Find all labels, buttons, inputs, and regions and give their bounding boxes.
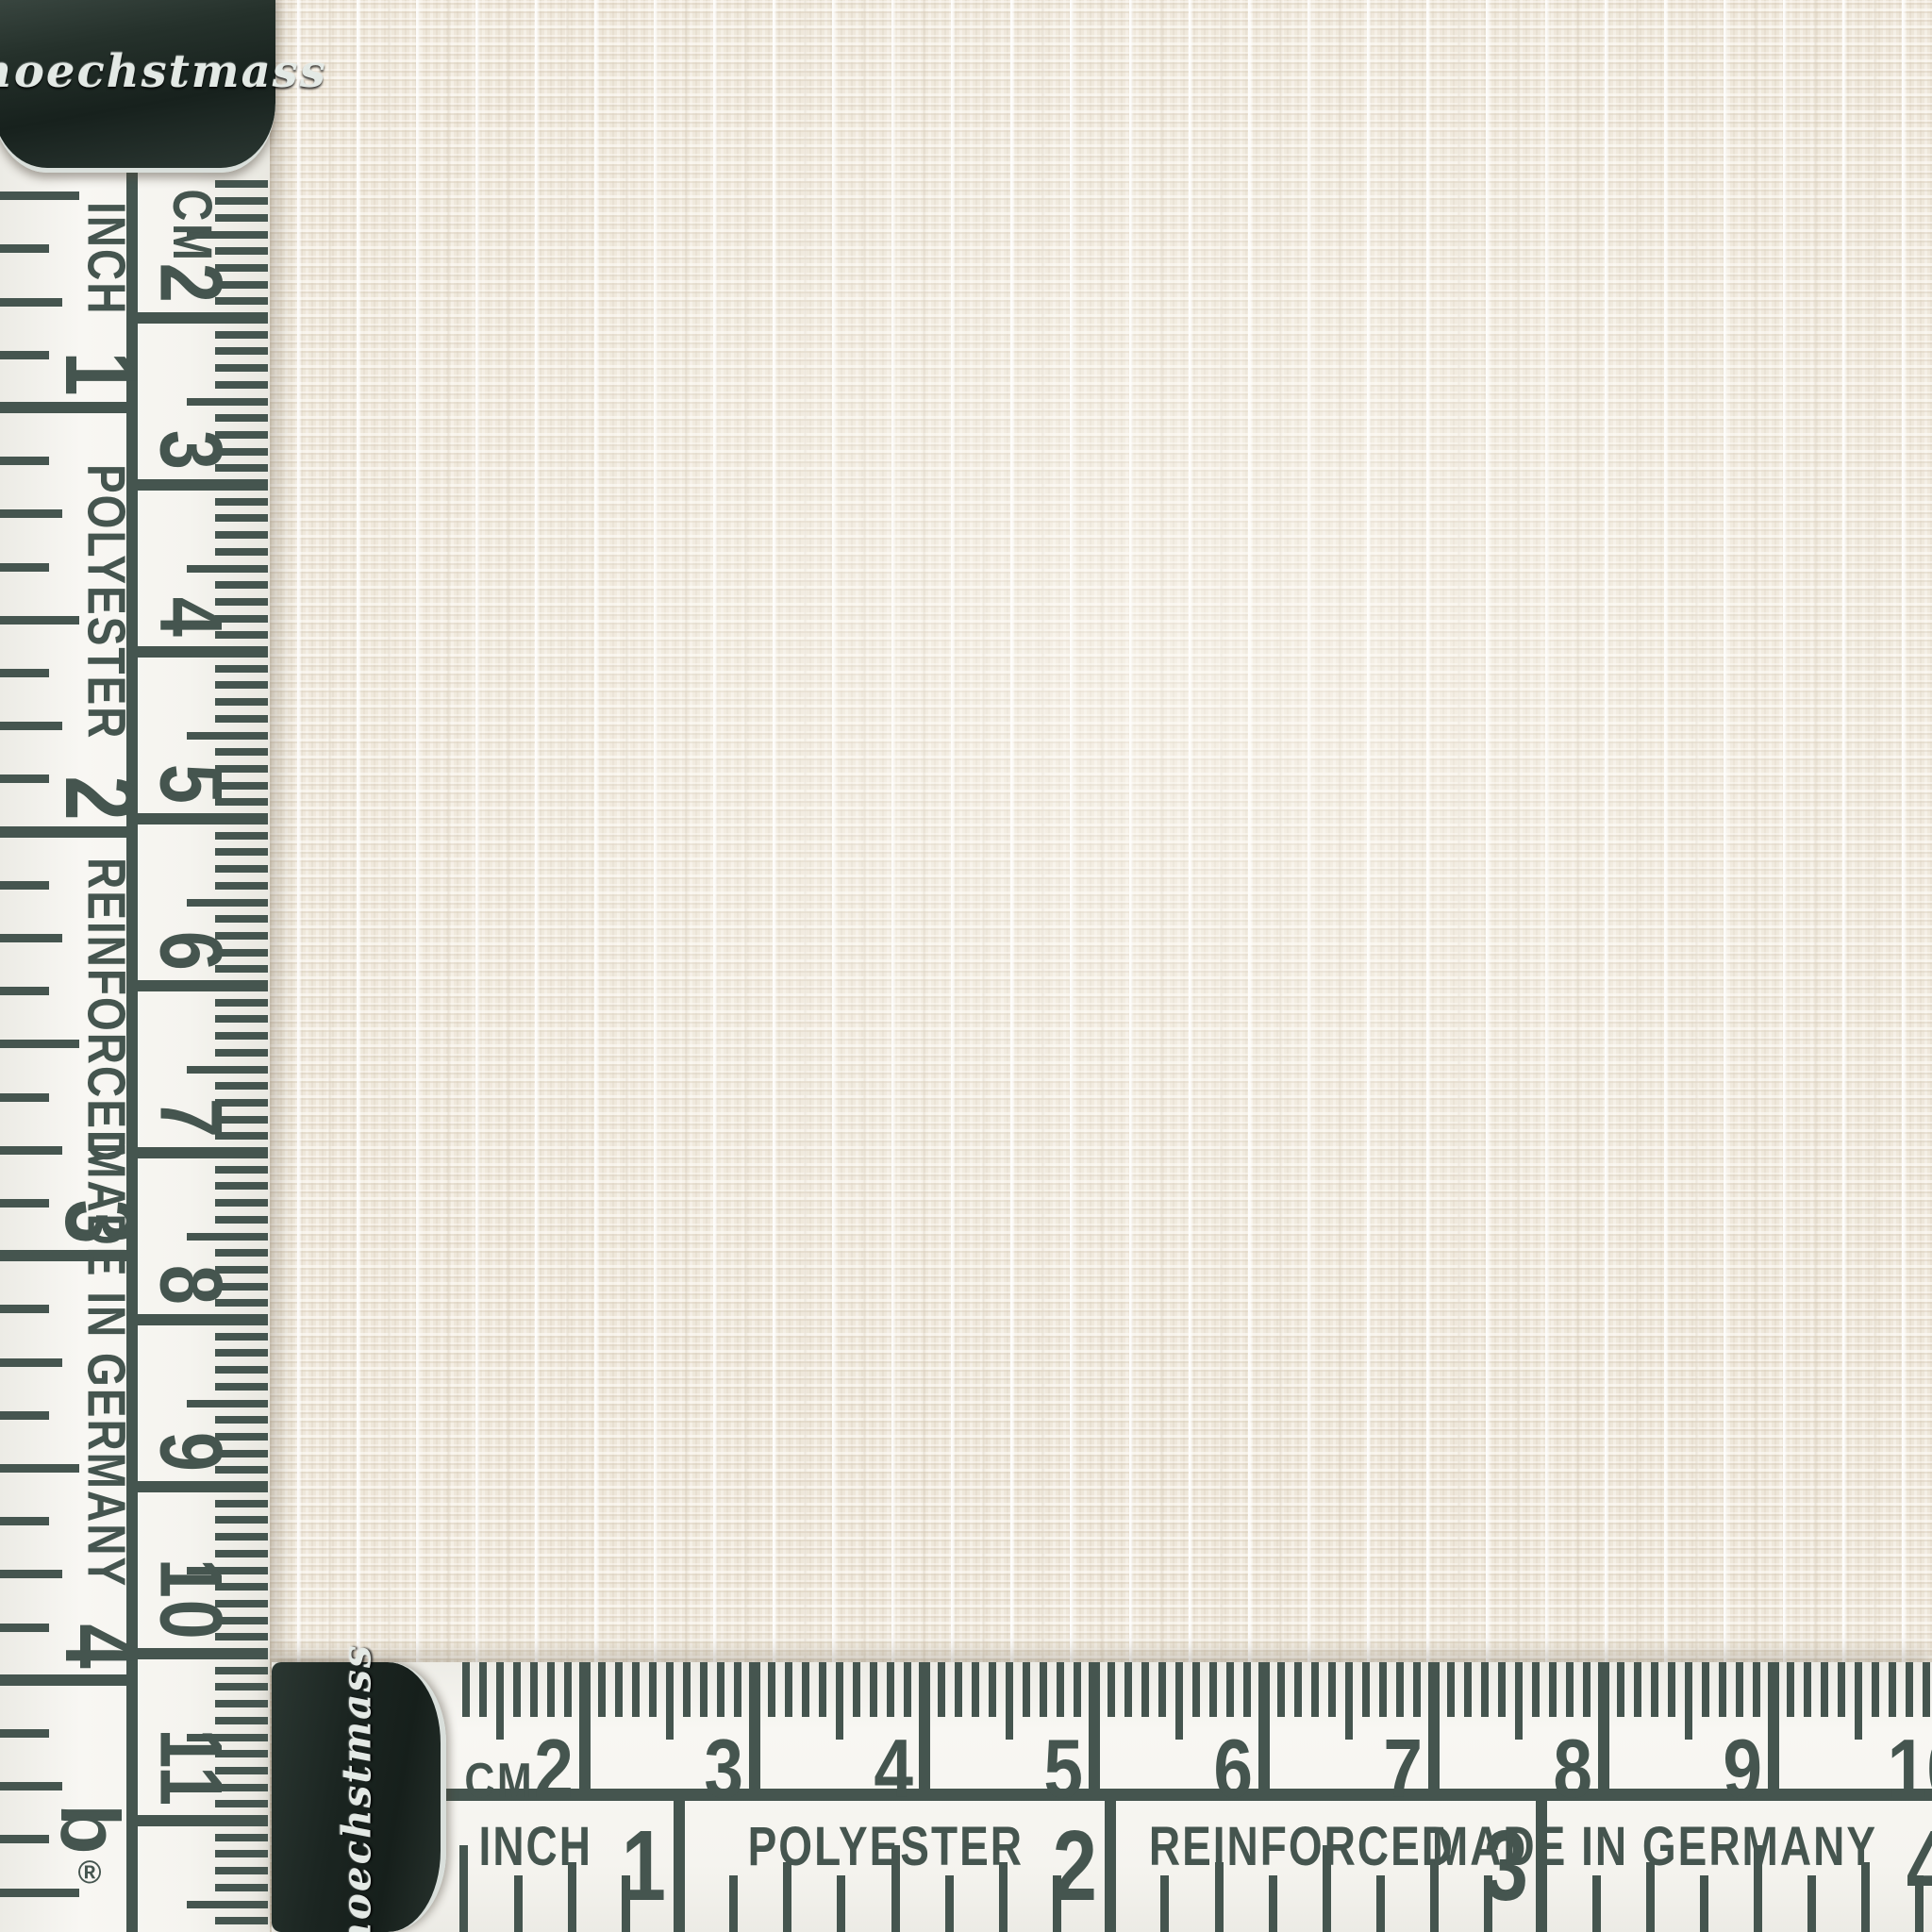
horizontal-cm-number-label: 6 — [1213, 1721, 1253, 1817]
horizontal-mm-tick — [1464, 1662, 1472, 1717]
vertical-inch-number-label: 1 — [42, 352, 158, 396]
vertical-mm-tick — [215, 1867, 268, 1874]
vertical-inch-text-label: REINFORCED — [75, 858, 138, 1163]
horizontal-5mm-tick — [666, 1662, 674, 1740]
vertical-inch-line — [0, 1674, 132, 1686]
horizontal-inch-tick — [1700, 1875, 1708, 1932]
horizontal-mm-tick — [1838, 1662, 1845, 1717]
vertical-mm-tick — [215, 1349, 268, 1357]
horizontal-inch-tick — [837, 1875, 845, 1932]
vertical-mm-tick — [215, 681, 268, 689]
vertical-inch-tick — [0, 1729, 49, 1738]
horizontal-cm-number-label: CM2 — [465, 1721, 574, 1817]
vertical-5mm-tick — [187, 1066, 268, 1074]
horizontal-cm-number-label: 5 — [1043, 1721, 1083, 1817]
vertical-mm-tick — [215, 1216, 268, 1224]
horizontal-5mm-tick — [1515, 1662, 1523, 1740]
vertical-cm-number-label: 11 — [140, 1728, 242, 1807]
vertical-mm-tick — [215, 1333, 268, 1341]
horizontal-mm-tick — [649, 1662, 657, 1717]
vertical-5mm-tick — [187, 1233, 268, 1241]
vertical-inch-tick — [0, 1464, 79, 1473]
horizontal-inch-tick — [1376, 1875, 1385, 1932]
fabric-background — [0, 0, 1932, 1932]
horizontal-mm-tick — [989, 1662, 996, 1717]
horizontal-mm-tick — [1396, 1662, 1404, 1717]
horizontal-mm-tick — [1719, 1662, 1726, 1717]
horizontal-mm-tick — [904, 1662, 911, 1717]
horizontal-5mm-tick — [1345, 1662, 1353, 1740]
horizontal-cm-line — [749, 1662, 760, 1789]
vertical-inch-tick — [0, 1782, 62, 1790]
horizontal-mm-tick — [1481, 1662, 1489, 1717]
vertical-cm-number-label: 8 — [140, 1265, 242, 1307]
vertical-mm-tick — [215, 1500, 268, 1507]
horizontal-mm-tick — [1583, 1662, 1591, 1717]
vertical-cm-line — [132, 1314, 268, 1325]
vertical-inch-tick — [0, 1411, 49, 1420]
vertical-mm-tick — [215, 748, 268, 756]
vertical-inch-tick — [0, 722, 62, 730]
vertical-inch-text-label: POLYESTER — [75, 464, 138, 740]
vertical-mm-tick — [215, 1834, 268, 1841]
horizontal-mm-tick — [1141, 1662, 1149, 1717]
vertical-mm-tick — [215, 331, 268, 339]
horizontal-mm-tick — [1736, 1662, 1743, 1717]
horizontal-mm-tick — [615, 1662, 623, 1717]
vertical-mm-tick — [215, 414, 268, 422]
vertical-mm-tick — [215, 1516, 268, 1524]
vertical-mm-tick — [215, 1383, 268, 1391]
brand-logo-letter: b — [43, 1804, 137, 1855]
vertical-inch-line — [0, 402, 132, 413]
vertical-mm-tick — [215, 832, 268, 840]
vertical-mm-tick — [215, 1667, 268, 1674]
horizontal-cm-line — [1258, 1662, 1270, 1789]
vertical-cm-line — [132, 1815, 268, 1826]
vertical-mm-tick — [215, 364, 268, 372]
horizontal-divider-line — [429, 1789, 1932, 1801]
vertical-cm-number-label: CM2 — [140, 190, 242, 305]
horizontal-inch-tick — [1160, 1875, 1169, 1932]
horizontal-mm-tick — [564, 1662, 572, 1717]
horizontal-mm-tick — [972, 1662, 979, 1717]
vertical-5mm-tick — [187, 899, 268, 907]
horizontal-mm-tick — [1923, 1662, 1930, 1717]
vertical-mm-tick — [215, 999, 268, 1007]
vertical-inch-tick — [0, 1146, 62, 1155]
horizontal-inch-tick — [945, 1875, 954, 1932]
horizontal-mm-tick — [1549, 1662, 1557, 1717]
vertical-inch-tick — [0, 192, 79, 200]
horizontal-tape-end-clip: hoechstmass — [272, 1662, 446, 1932]
horizontal-mm-tick — [1328, 1662, 1336, 1717]
vertical-mm-tick — [215, 1366, 268, 1374]
horizontal-mm-tick — [870, 1662, 877, 1717]
vertical-cm-unit-label: CM — [160, 190, 222, 263]
horizontal-inch-line — [1105, 1789, 1116, 1932]
vertical-inch-tick — [0, 934, 62, 942]
horizontal-cm-number-label: 3 — [704, 1721, 743, 1817]
vertical-mm-tick — [215, 698, 268, 706]
horizontal-mm-tick — [1158, 1662, 1166, 1717]
horizontal-cm-line — [1768, 1662, 1779, 1789]
horizontal-mm-tick — [632, 1662, 640, 1717]
vertical-mm-tick — [215, 180, 268, 188]
horizontal-inch-text-label: MADE IN GERMANY — [1432, 1813, 1877, 1878]
vertical-mm-tick — [215, 498, 268, 506]
horizontal-mm-tick — [1209, 1662, 1217, 1717]
horizontal-mm-tick — [1753, 1662, 1760, 1717]
vertical-cm-number-label: 6 — [140, 931, 242, 973]
horizontal-cm-line — [579, 1662, 591, 1789]
horizontal-5mm-tick — [1006, 1662, 1013, 1740]
horizontal-mm-tick — [1651, 1662, 1658, 1717]
vertical-mm-tick — [215, 915, 268, 923]
vertical-mm-tick — [215, 1683, 268, 1690]
vertical-5mm-tick — [187, 398, 268, 406]
vertical-mm-tick — [215, 1015, 268, 1023]
vertical-cm-line — [132, 1147, 268, 1158]
horizontal-inch-number-label: 2 — [1053, 1809, 1097, 1924]
horizontal-mm-tick — [853, 1662, 860, 1717]
horizontal-mm-tick — [1804, 1662, 1811, 1717]
horizontal-cm-number-label: 4 — [874, 1721, 913, 1817]
vertical-mm-tick — [215, 1249, 268, 1257]
horizontal-inch-tick — [514, 1875, 523, 1932]
horizontal-mm-tick — [1702, 1662, 1709, 1717]
horizontal-mm-tick — [1532, 1662, 1540, 1717]
vertical-cm-line — [132, 646, 268, 658]
horizontal-mm-tick — [1057, 1662, 1064, 1717]
horizontal-mm-tick — [802, 1662, 809, 1717]
horizontal-mm-tick — [1074, 1662, 1081, 1717]
vertical-mm-tick — [215, 1850, 268, 1857]
horizontal-5mm-tick — [1855, 1662, 1862, 1740]
vertical-mm-tick — [215, 1717, 268, 1724]
brand-script-bottom: hoechstmass — [333, 1643, 379, 1932]
vertical-mm-tick — [215, 1700, 268, 1707]
horizontal-mm-tick — [1124, 1662, 1132, 1717]
vertical-cm-number-label: 3 — [140, 430, 242, 472]
horizontal-mm-tick — [1668, 1662, 1675, 1717]
vertical-inch-text-label: MADE IN GERMANY — [75, 1142, 138, 1588]
horizontal-mm-tick — [1617, 1662, 1624, 1717]
horizontal-mm-tick — [1362, 1662, 1370, 1717]
vertical-inch-tick — [0, 881, 49, 890]
horizontal-cm-number-label: 8 — [1553, 1721, 1592, 1817]
vertical-mm-tick — [215, 548, 268, 556]
horizontal-inch-tick — [459, 1845, 468, 1932]
horizontal-cm-line — [1428, 1662, 1440, 1789]
vertical-mm-tick — [215, 1416, 268, 1424]
vertical-inch-tick — [0, 563, 49, 572]
vertical-inch-line — [0, 826, 132, 838]
vertical-cm-line — [132, 479, 268, 491]
horizontal-mm-tick — [1821, 1662, 1828, 1717]
horizontal-cm-line — [919, 1662, 930, 1789]
horizontal-mm-tick — [1447, 1662, 1455, 1717]
horizontal-mm-tick — [955, 1662, 962, 1717]
horizontal-cm-number-label: 10 — [1888, 1721, 1932, 1817]
horizontal-5mm-tick — [836, 1662, 843, 1740]
horizontal-mm-tick — [1906, 1662, 1913, 1717]
vertical-cm-number-label: 7 — [140, 1098, 242, 1140]
vertical-inch-number-label: 4 — [42, 1624, 158, 1669]
vertical-inch-tick — [0, 1517, 49, 1525]
vertical-mm-tick — [215, 1884, 268, 1891]
vertical-mm-tick — [215, 1032, 268, 1040]
vertical-inch-tick — [0, 616, 79, 625]
vertical-5mm-tick — [187, 1901, 268, 1908]
horizontal-mm-tick — [1040, 1662, 1047, 1717]
horizontal-mm-tick — [683, 1662, 691, 1717]
horizontal-inch-tick — [1592, 1875, 1601, 1932]
vertical-mm-tick — [215, 665, 268, 673]
horizontal-mm-tick — [1889, 1662, 1896, 1717]
horizontal-mm-tick — [1566, 1662, 1574, 1717]
horizontal-cm-line — [1598, 1662, 1609, 1789]
horizontal-mm-tick — [717, 1662, 724, 1717]
horizontal-cm-number-label: 7 — [1383, 1721, 1423, 1817]
horizontal-mm-tick — [1787, 1662, 1794, 1717]
vertical-5mm-tick — [187, 732, 268, 740]
horizontal-mm-tick — [1294, 1662, 1302, 1717]
horizontal-mm-tick — [1379, 1662, 1387, 1717]
vertical-inch-tick — [0, 669, 49, 677]
horizontal-mm-tick — [1872, 1662, 1879, 1717]
horizontal-mm-tick — [513, 1662, 521, 1717]
horizontal-mm-tick — [938, 1662, 945, 1717]
horizontal-inch-number-label: 1 — [622, 1809, 666, 1924]
horizontal-cm-number-label: 9 — [1723, 1721, 1762, 1817]
registered-trademark-icon: ® — [72, 1855, 108, 1890]
horizontal-5mm-tick — [1685, 1662, 1692, 1740]
horizontal-mm-tick — [1277, 1662, 1285, 1717]
vertical-mm-tick — [215, 347, 268, 355]
horizontal-inch-line — [674, 1789, 685, 1932]
vertical-inch-tick — [0, 457, 49, 465]
horizontal-mm-tick — [530, 1662, 538, 1717]
horizontal-mm-tick — [819, 1662, 826, 1717]
vertical-mm-tick — [215, 1049, 268, 1057]
horizontal-inch-text-label: POLYESTER — [748, 1813, 1024, 1878]
vertical-5mm-tick — [187, 565, 268, 573]
vertical-5mm-tick — [187, 1400, 268, 1407]
vertical-cm-line — [132, 312, 268, 324]
horizontal-mm-tick — [1226, 1662, 1234, 1717]
vertical-mm-tick — [215, 882, 268, 890]
vertical-mm-tick — [215, 715, 268, 723]
vertical-cm-number-label: 4 — [140, 597, 242, 639]
vertical-mm-tick — [215, 865, 268, 873]
horizontal-mm-tick — [1634, 1662, 1641, 1717]
horizontal-5mm-tick — [1175, 1662, 1183, 1740]
vertical-mm-tick — [215, 1082, 268, 1090]
horizontal-inch-tick — [1269, 1875, 1277, 1932]
vertical-inch-tick — [0, 987, 49, 995]
horizontal-mm-tick — [1108, 1662, 1115, 1717]
horizontal-inch-tick — [1807, 1875, 1816, 1932]
vertical-inch-text-label: INCH — [75, 202, 138, 315]
vertical-mm-tick — [215, 1550, 268, 1557]
vertical-inch-number-label: 2 — [42, 776, 158, 821]
horizontal-inch-number-label: 4 — [1907, 1809, 1932, 1924]
vertical-inch-tick — [0, 509, 62, 518]
vertical-inch-tick — [0, 1358, 62, 1367]
brand-script-top: hoechstmass — [0, 45, 327, 98]
horizontal-cm-unit-label: CM — [465, 1754, 535, 1808]
vertical-cm-number-label: 9 — [140, 1432, 242, 1474]
brand-logo: b® — [42, 1804, 138, 1890]
horizontal-mm-tick — [768, 1662, 775, 1717]
vertical-mm-tick — [215, 1166, 268, 1174]
horizontal-mm-tick — [547, 1662, 555, 1717]
horizontal-mm-tick — [1192, 1662, 1200, 1717]
horizontal-mm-tick — [1311, 1662, 1319, 1717]
vertical-mm-tick — [215, 514, 268, 522]
vertical-inch-tick — [0, 1570, 62, 1578]
horizontal-mm-tick — [479, 1662, 487, 1717]
vertical-mm-tick — [215, 848, 268, 856]
horizontal-mm-tick — [1023, 1662, 1030, 1717]
vertical-mm-tick — [215, 381, 268, 389]
vertical-inch-tick — [0, 1093, 49, 1102]
vertical-mm-tick — [215, 1182, 268, 1190]
horizontal-mm-tick — [598, 1662, 606, 1717]
horizontal-inch-text-label: INCH — [479, 1813, 592, 1878]
vertical-inch-tick — [0, 244, 49, 253]
horizontal-inch-text-label: REINFORCED — [1149, 1813, 1455, 1878]
vertical-mm-tick — [215, 1533, 268, 1541]
horizontal-cm-line — [1089, 1662, 1100, 1789]
vertical-inch-tick — [0, 298, 62, 307]
horizontal-mm-tick — [462, 1662, 470, 1717]
vertical-mm-tick — [215, 581, 268, 589]
fabric-photo-with-measuring-tapes: CM2345678910111INCH2POLYESTER3REINFORCED… — [0, 0, 1932, 1932]
vertical-cm-line — [132, 980, 268, 991]
vertical-mm-tick — [215, 1917, 268, 1924]
vertical-inch-tick — [0, 1040, 79, 1048]
vertical-cm-line — [132, 1481, 268, 1492]
horizontal-mm-tick — [1498, 1662, 1506, 1717]
vertical-inch-tick — [0, 1305, 49, 1313]
vertical-mm-tick — [215, 1199, 268, 1207]
horizontal-inch-tick — [729, 1875, 738, 1932]
horizontal-mm-tick — [700, 1662, 708, 1717]
horizontal-mm-tick — [887, 1662, 894, 1717]
vertical-tape-metal-clip: hoechstmass — [0, 0, 275, 173]
horizontal-mm-tick — [1413, 1662, 1421, 1717]
vertical-mm-tick — [215, 531, 268, 539]
horizontal-mm-tick — [785, 1662, 792, 1717]
horizontal-mm-tick — [734, 1662, 741, 1717]
horizontal-mm-tick — [1243, 1662, 1251, 1717]
